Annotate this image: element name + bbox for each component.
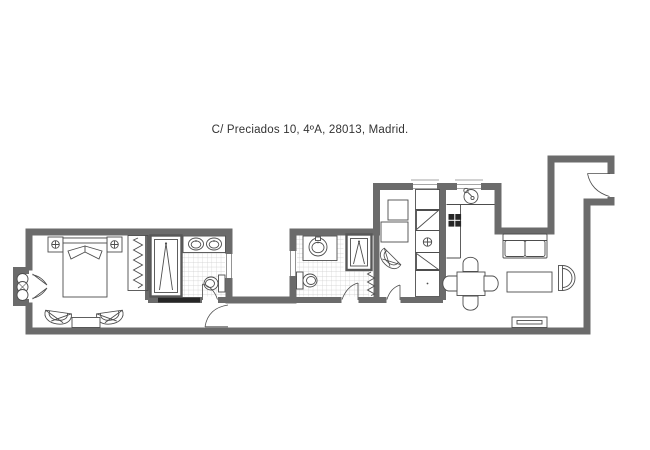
pantry-cabinet-2: [381, 222, 408, 242]
living-area: [503, 234, 575, 328]
dining-area: [443, 257, 498, 310]
side-table: [72, 318, 100, 328]
dining-chair-left: [443, 276, 457, 291]
window-bath2: [289, 251, 297, 276]
hall-armchair: [376, 248, 401, 273]
d-table: [559, 266, 576, 291]
floor-plan-canvas: [0, 0, 650, 450]
french-doors: [33, 274, 48, 299]
kitchen: [447, 188, 495, 258]
entrance-door: [588, 174, 611, 197]
kitchen-sink: [464, 188, 478, 203]
dining-chair-bottom: [463, 296, 478, 310]
pantry-cabinet-1: [388, 200, 408, 220]
corridor: [205, 305, 228, 327]
bedroom: [17, 236, 148, 328]
sofa: [503, 234, 547, 258]
hall-door: [387, 285, 400, 300]
dining-chair-right: [484, 276, 498, 291]
tall-cabinet-unit: [416, 190, 440, 297]
armchair-right: [96, 310, 124, 326]
stove-burners: [449, 214, 462, 227]
window-kitchen-2: [455, 180, 483, 191]
hallway: [376, 190, 439, 301]
window-kitchen-1: [411, 180, 439, 191]
double-bed: [63, 238, 107, 297]
twin-sinks: [183, 236, 226, 253]
floor-plan-page: C/ Preciados 10, 4ºA, 28013, Madrid.: [0, 0, 650, 450]
armchair-left: [44, 310, 72, 326]
entrance: [588, 174, 611, 197]
toilet-1: [204, 275, 225, 292]
bay-window: [17, 274, 47, 301]
shower-2: [347, 235, 372, 271]
window-bath1: [225, 254, 233, 278]
kitchen-counter: [447, 205, 495, 259]
round-sink: [303, 236, 337, 261]
dining-table: [457, 272, 485, 296]
sideboard: [512, 317, 547, 328]
shower-1: [151, 236, 182, 297]
coffee-table: [507, 272, 552, 292]
shower-threshold: [158, 298, 200, 303]
suite-door: [205, 305, 228, 327]
dining-chair-top: [463, 257, 478, 271]
